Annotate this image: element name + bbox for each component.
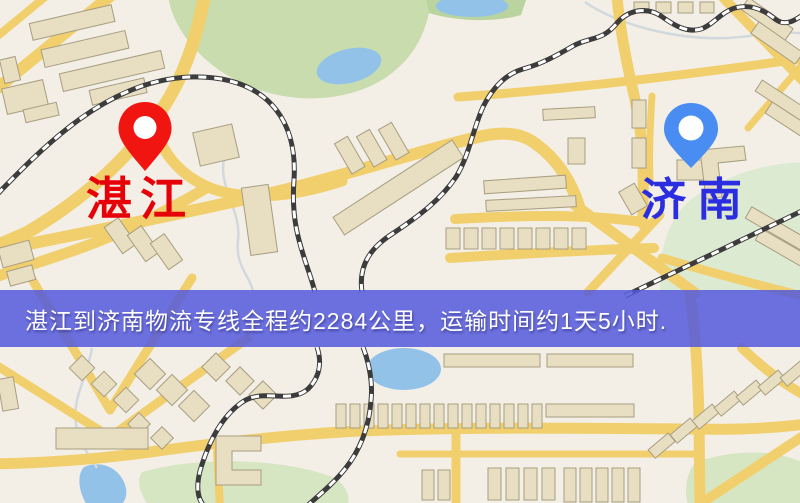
origin-pin-icon bbox=[117, 101, 173, 173]
route-info-banner: 湛江到济南物流专线全程约2284公里，运输时间约1天5小时. bbox=[0, 290, 800, 347]
destination-label: 济南 bbox=[641, 177, 753, 222]
destination-pin[interactable] bbox=[662, 102, 720, 170]
map-graphic bbox=[0, 0, 800, 503]
destination-pin-icon bbox=[662, 102, 720, 170]
map-view: 湛江 济南 湛江到济南物流专线全程约2284公里，运输时间约1天5小时. bbox=[0, 0, 800, 503]
origin-label: 湛江 bbox=[86, 176, 194, 222]
route-info-text: 湛江到济南物流专线全程约2284公里，运输时间约1天5小时. bbox=[25, 302, 667, 336]
origin-pin[interactable] bbox=[117, 101, 173, 173]
